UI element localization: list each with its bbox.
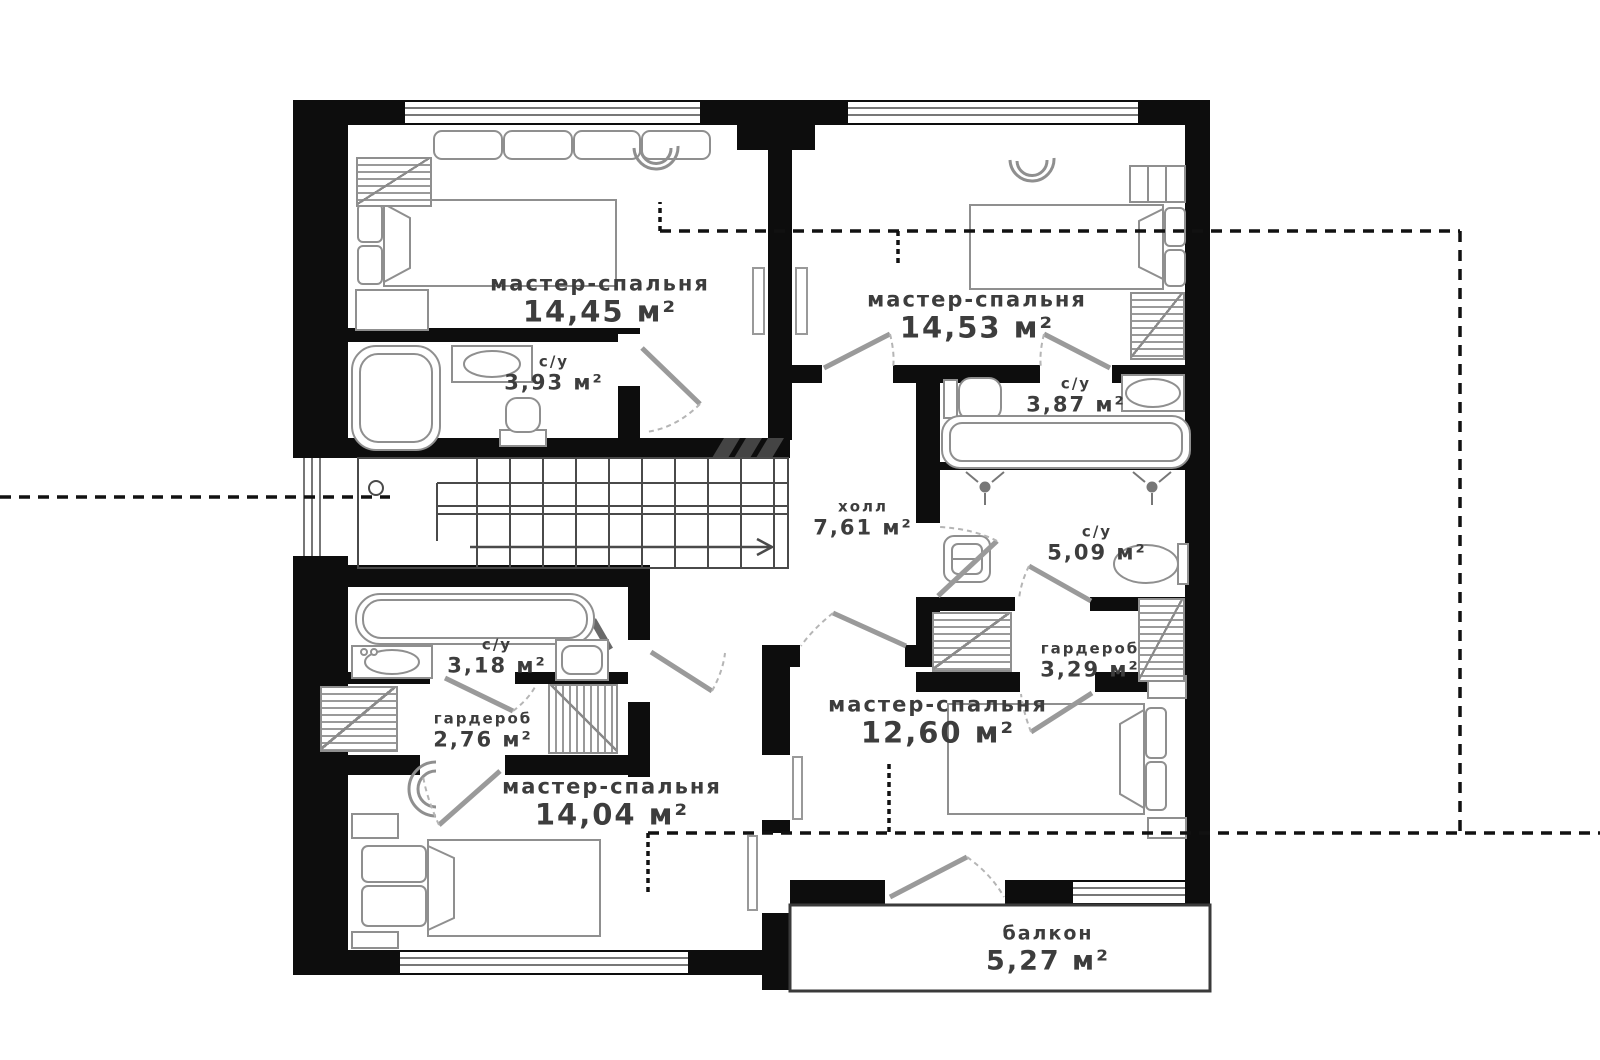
room-label-bathroom-2: с/у 3,87 м² (1026, 375, 1126, 416)
sink-icon (1122, 375, 1184, 411)
room-label-master-bedroom-4: мастер-спальня 12,60 м² (828, 692, 1048, 749)
room-name: мастер-спальня (828, 692, 1048, 716)
furniture-master-bedroom-2 (970, 158, 1185, 289)
door-leaf-bedroom-3 (439, 771, 500, 825)
room-name: мастер-спальня (867, 287, 1087, 311)
room-name: мастер-спальня (502, 774, 722, 798)
room-label-bathroom-1: с/у 3,93 м² (504, 353, 604, 394)
room-label-bathroom-4: с/у 3,18 м² (447, 636, 547, 677)
wardrobe-hatch-icon (1138, 598, 1185, 682)
room-label-balcony: балкон 5,27 м² (986, 924, 1110, 977)
shower-head-icon (1133, 472, 1171, 505)
double-bed-icon (362, 840, 600, 936)
room-name: гардероб (433, 710, 533, 727)
nightstand (352, 814, 398, 838)
room-area: 3,87 м² (1026, 393, 1126, 417)
room-name: с/у (1047, 523, 1147, 540)
room-label-master-bedroom-1: мастер-спальня 14,45 м² (490, 271, 710, 328)
door-leaf-bathroom-4 (651, 652, 712, 691)
wardrobe-hatch-icon (320, 686, 398, 752)
room-label-master-bedroom-2: мастер-спальня 14,53 м² (867, 287, 1087, 344)
room-name: холл (813, 498, 913, 515)
bathtub-icon (942, 416, 1190, 468)
floor-plan-page: мастер-спальня 14,45 м² с/у 3,93 м² маст… (0, 0, 1600, 1060)
wall-right (1185, 100, 1210, 906)
window-left-stairs (293, 458, 348, 556)
room-name: мастер-спальня (490, 271, 710, 295)
wall-left-upper (293, 100, 348, 460)
bathtub-icon (352, 346, 440, 450)
toilet-icon (944, 378, 1001, 420)
stairs-up-arrow-icon (470, 539, 772, 555)
wall-center-vertical (768, 125, 792, 440)
room-area: 14,45 м² (490, 295, 710, 328)
wardrobe-hatch-icon (1130, 292, 1185, 360)
door-leaf-hall (833, 613, 906, 646)
window-bottom (400, 952, 688, 973)
ceiling-lamp-icon (1010, 158, 1054, 181)
room-area: 3,29 м² (1040, 658, 1140, 682)
room-area: 5,09 м² (1047, 541, 1147, 565)
room-name: с/у (447, 636, 547, 653)
door-leaf-bathroom-1 (642, 348, 700, 404)
floor-plan-drawing (0, 0, 1600, 1060)
room-label-wardrobe-2: гардероб 2,76 м² (433, 710, 533, 751)
room-name: гардероб (1040, 640, 1140, 657)
room-label-bathroom-3: с/у 5,09 м² (1047, 523, 1147, 564)
window-top-right (848, 102, 1138, 123)
room-label-master-bedroom-3: мастер-спальня 14,04 м² (502, 774, 722, 831)
sink-icon (352, 646, 432, 678)
window-balcony-wall (1073, 882, 1185, 903)
door-leaf-wardrobe-1 (1029, 566, 1091, 601)
room-area: 3,93 м² (504, 371, 604, 395)
double-bed-icon (970, 205, 1185, 289)
room-area: 5,27 м² (986, 945, 1110, 976)
room-area: 12,60 м² (828, 716, 1048, 749)
room-name: с/у (504, 353, 604, 370)
room-area: 14,04 м² (502, 798, 722, 831)
shelf (1130, 166, 1185, 202)
room-area: 2,76 м² (433, 728, 533, 752)
shower-head-icon (966, 472, 1004, 505)
wardrobe-hatch-icon (356, 157, 432, 207)
nightstand (356, 290, 428, 330)
room-area: 3,18 м² (447, 654, 547, 678)
nightstand (352, 932, 398, 948)
room-name: с/у (1026, 375, 1126, 392)
room-area: 7,61 м² (813, 516, 913, 540)
wall-hall-right (916, 365, 940, 647)
wardrobe-hatch-icon (932, 612, 1012, 672)
sink-icon (944, 536, 990, 582)
window-top-left (405, 102, 700, 123)
room-label-wardrobe-1: гардероб 3,29 м² (1040, 640, 1140, 681)
room-label-hall: холл 7,61 м² (813, 498, 913, 539)
washing-machine-icon (556, 640, 608, 680)
nightstand (1148, 818, 1186, 838)
room-area: 14,53 м² (867, 311, 1087, 344)
room-name: балкон (986, 924, 1110, 946)
toilet-icon (500, 398, 546, 446)
wardrobe-hatch-icon (548, 684, 618, 754)
staircase (358, 458, 788, 568)
